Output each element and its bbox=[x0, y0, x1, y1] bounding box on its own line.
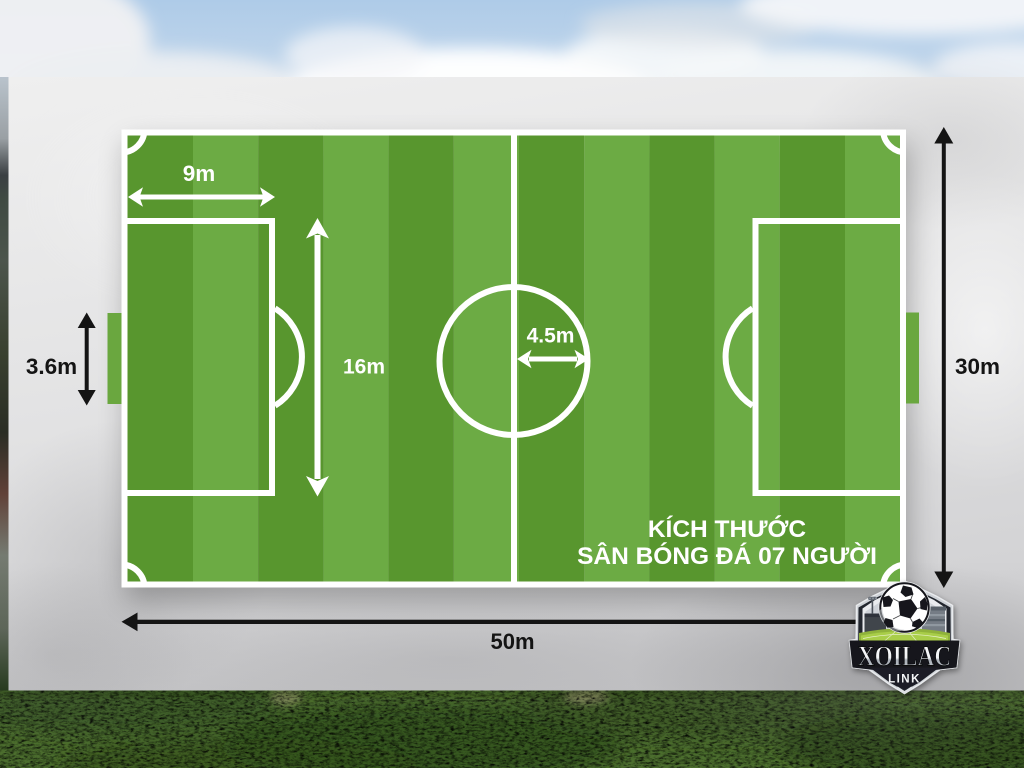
svg-text:30m: 30m bbox=[955, 354, 1000, 379]
svg-text:3.6m: 3.6m bbox=[26, 354, 77, 379]
svg-text:XOILAC: XOILAC bbox=[858, 640, 951, 672]
svg-text:LINK: LINK bbox=[888, 674, 921, 686]
svg-text:50m: 50m bbox=[490, 629, 534, 654]
svg-text:16m: 16m bbox=[343, 356, 385, 379]
svg-text:9m: 9m bbox=[183, 161, 216, 186]
svg-text:4.5m: 4.5m bbox=[527, 325, 575, 348]
svg-text:KÍCH THƯỚC: KÍCH THƯỚC bbox=[648, 515, 807, 543]
svg-text:SÂN BÓNG ĐÁ 07 NGƯỜI: SÂN BÓNG ĐÁ 07 NGƯỜI bbox=[577, 542, 877, 570]
